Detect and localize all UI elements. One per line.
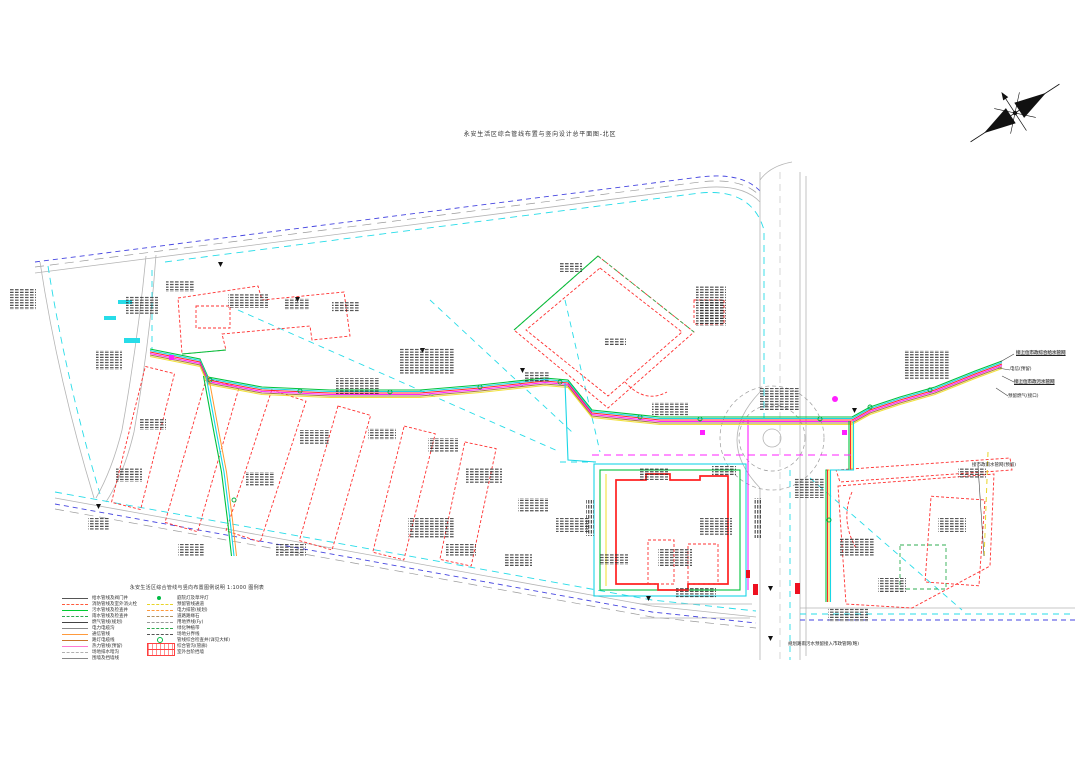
legend-sample-line <box>147 628 173 629</box>
legend-sample-line <box>62 622 88 623</box>
legend-item-right-5: 绿化种植带 <box>147 626 230 631</box>
legend-item-right-1: 预留管线通道 <box>147 602 230 607</box>
storm-connection-label: 接市政雨水管网(预留) <box>972 462 1016 468</box>
legend-sample-line <box>147 616 173 617</box>
legend-sample-line <box>62 646 88 647</box>
legend-item-left-1: 消防管线及室外消火栓 <box>62 602 137 607</box>
buildings <box>112 256 1012 608</box>
legend-sample-line <box>62 652 88 653</box>
site-plan-canvas: 永安生活区综合管线布置与竖向设计总平面图-北区 永安生活区综合管线与竖向布置图例… <box>0 0 1080 763</box>
legend-sample-line <box>62 658 88 659</box>
offsite-label-2: 接上位市政污水管网 <box>1014 379 1055 385</box>
legend-sample-line <box>62 640 88 641</box>
legend-sample-line <box>147 622 173 623</box>
legend-item-right-9: 室外台阶挡墙 <box>147 650 230 655</box>
drawing-title: 永安生活区综合管线布置与竖向设计总平面图-北区 <box>464 129 617 138</box>
legend-item-right-0: 庭院灯及草坪灯 <box>147 596 230 601</box>
offsite-label-1: 电信(预留) <box>1010 366 1032 372</box>
bottom-note: 规划路雨污水预留接入市政管网(略) <box>788 641 859 647</box>
legend-item-right-4: 用地界线(Fy) <box>147 620 230 625</box>
legend-item-right-3: 道路路缘石 <box>147 614 230 619</box>
legend-item-left-0: 给水管线及阀门井 <box>62 596 137 601</box>
legend-item-left-5: 电力电缆沟 <box>62 626 137 631</box>
leader-lines <box>978 354 1014 556</box>
legend-sample-line <box>147 610 173 611</box>
legend-sample-dot <box>147 596 173 600</box>
legend-sample-line <box>62 604 88 605</box>
legend-sample-bar <box>147 649 173 656</box>
legend-item-left-4: 燃气管线(规划) <box>62 620 137 625</box>
legend-item-left-2: 污水管线及检查井 <box>62 608 137 613</box>
pipeline-bundles <box>150 349 1002 602</box>
legend-sample-line <box>147 634 173 635</box>
legend-sample-line <box>62 616 88 617</box>
legend-item-left-7: 路灯电缆线 <box>62 638 137 643</box>
legend-right-column: 庭院灯及草坪灯预留管线通道电力排管(规划)道路路缘石用地界线(Fy)绿化种植带场… <box>147 596 230 661</box>
offsite-label-0: 接上位市政综合给水管网 <box>1016 350 1066 356</box>
legend-item-left-9: 场地排水暗沟 <box>62 650 137 655</box>
legend-item-left-3: 雨水管线及检查井 <box>62 614 137 619</box>
legend-item-right-2: 电力排管(规划) <box>147 608 230 613</box>
legend-sample-line <box>62 634 88 635</box>
legend-left-column: 给水管线及阀门井消防管线及室外消火栓污水管线及检查井雨水管线及检查井燃气管线(规… <box>62 596 137 661</box>
legend: 永安生活区综合管线与竖向布置图例说明 1:1000 图例表 给水管线及阀门井消防… <box>62 584 362 661</box>
legend-item-left-10: 围墙及挡墙线 <box>62 656 137 661</box>
legend-item-left-8: 热力管线(预留) <box>62 644 137 649</box>
legend-sample-line <box>147 604 173 605</box>
legend-item-left-6: 通信管线 <box>62 632 137 637</box>
legend-sample-line <box>62 610 88 611</box>
north-arrow-icon <box>957 63 1071 159</box>
offsite-label-3: 预留燃气(接口) <box>1008 393 1039 399</box>
legend-title: 永安生活区综合管线与竖向布置图例说明 1:1000 图例表 <box>82 584 312 591</box>
legend-sample-line <box>62 628 88 629</box>
legend-sample-line <box>62 598 88 599</box>
annotation-text-blocks <box>10 262 986 622</box>
legend-label: 围墙及挡墙线 <box>92 655 119 661</box>
legend-item-right-6: 场地分界线 <box>147 632 230 637</box>
legend-label: 室外台阶挡墙 <box>177 649 204 655</box>
